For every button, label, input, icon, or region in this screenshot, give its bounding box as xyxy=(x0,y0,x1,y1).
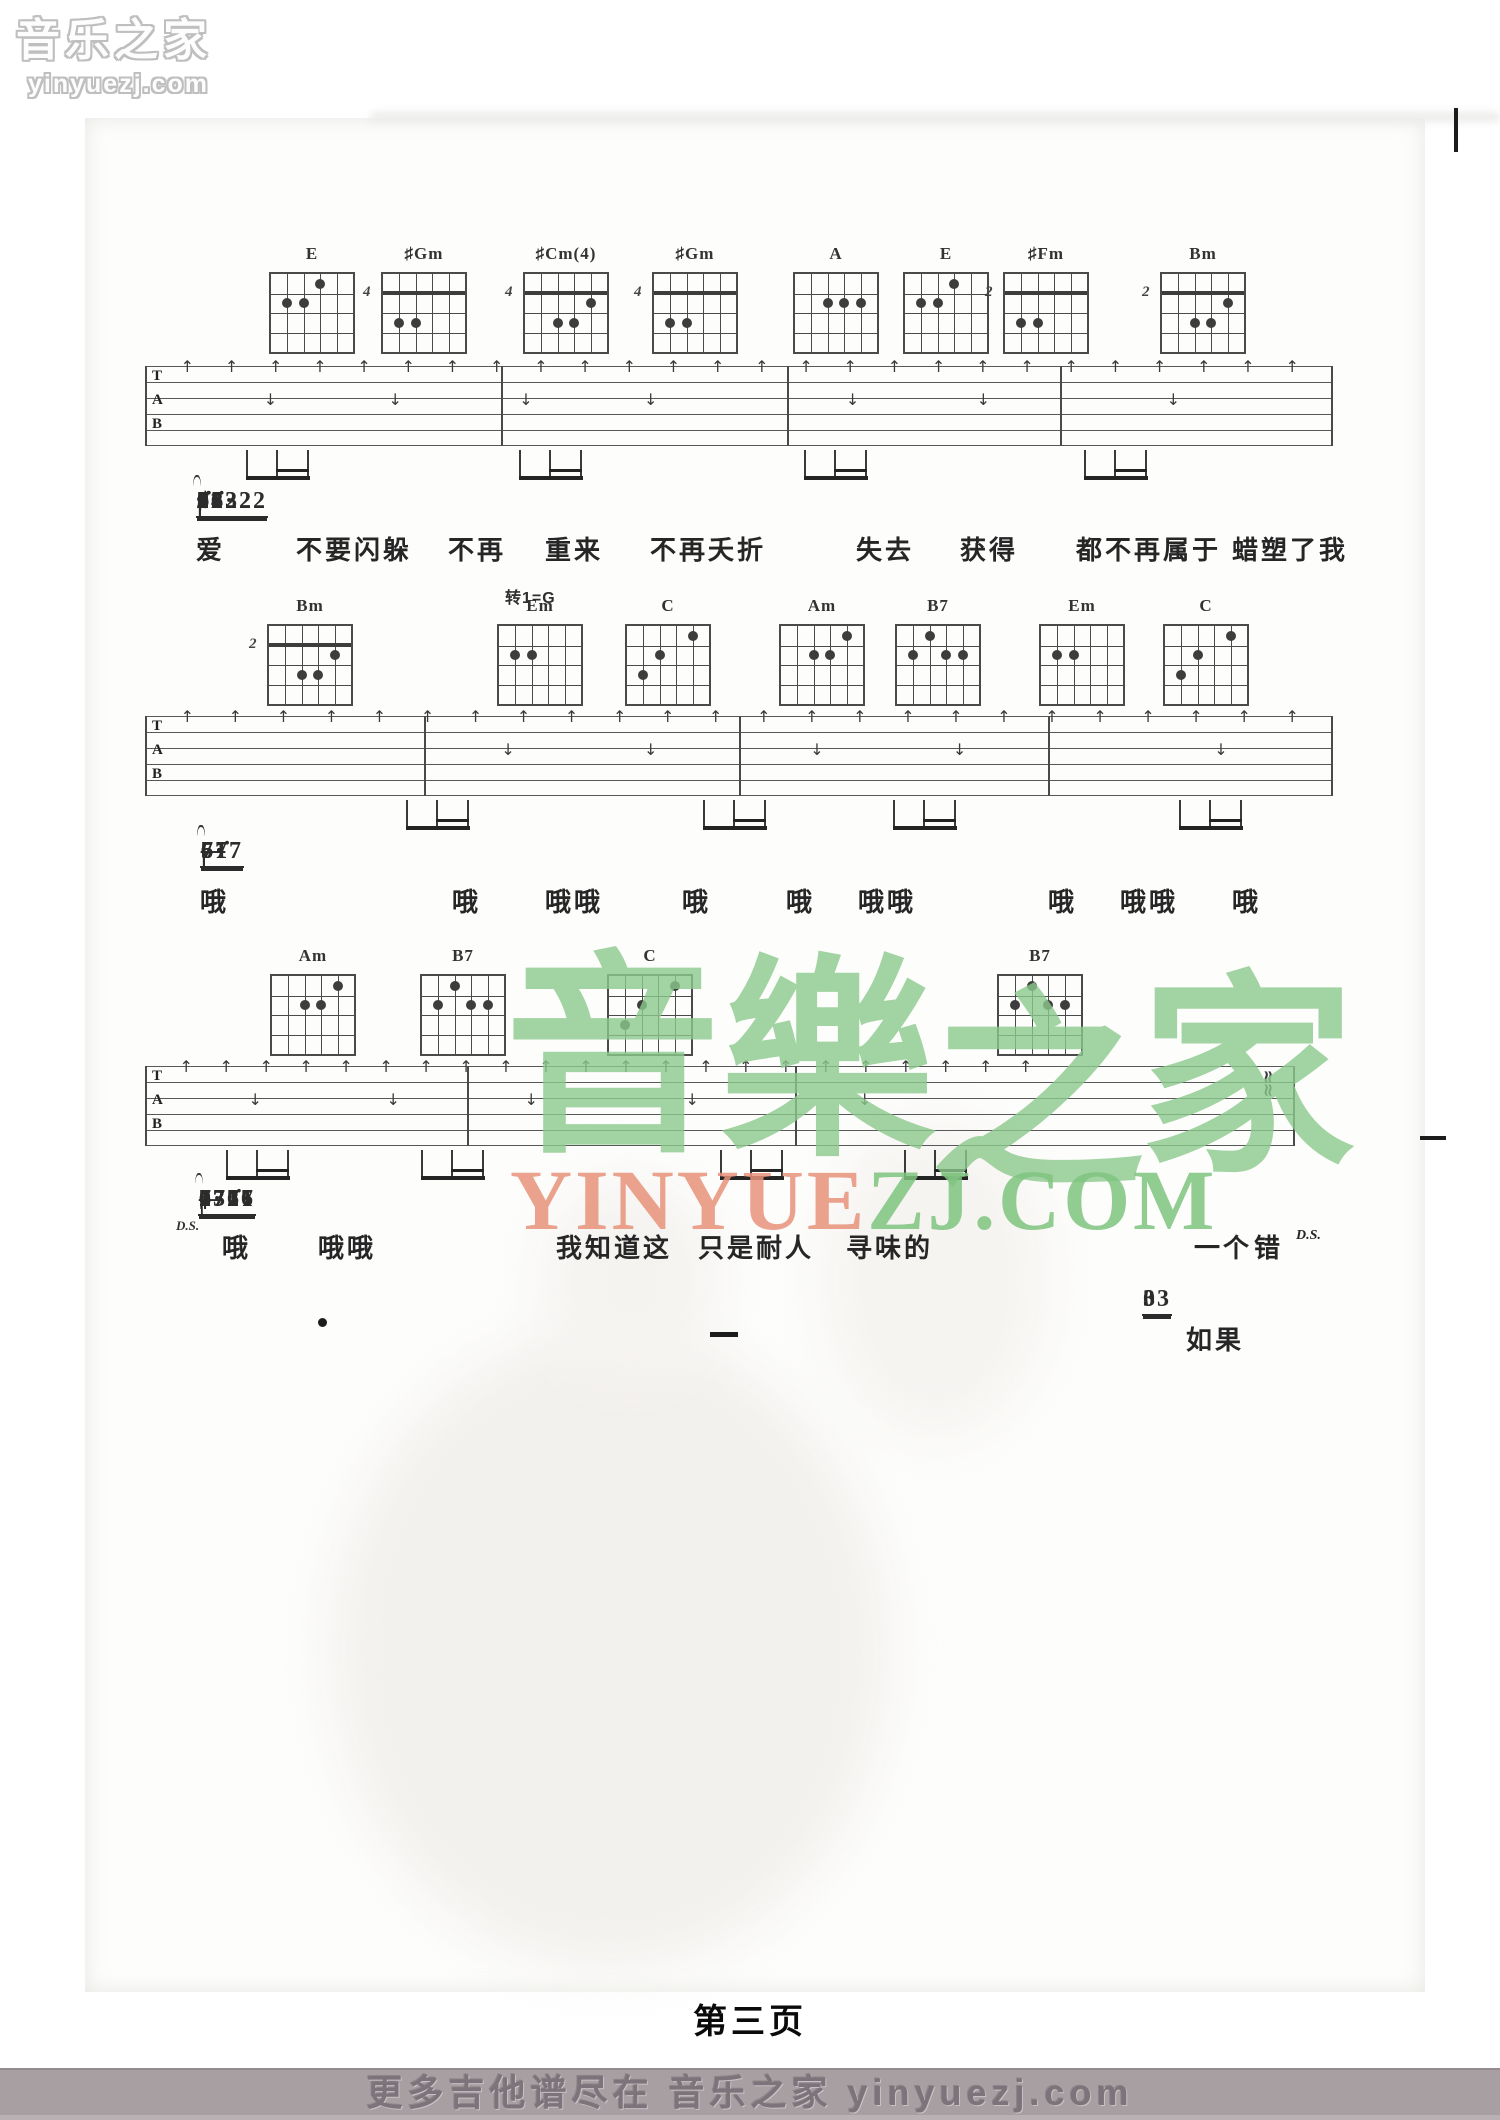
barre-fret-number: 2 xyxy=(249,636,257,653)
finger-dot xyxy=(527,650,537,660)
finger-dot xyxy=(433,1000,443,1010)
staff-barline xyxy=(1331,366,1333,446)
chord-name-label: C xyxy=(598,596,738,616)
note-stem xyxy=(804,450,806,478)
finger-dot xyxy=(839,298,849,308)
strum-up-arrow: ↑ xyxy=(1285,357,1298,376)
finger-dot xyxy=(842,631,852,641)
arpeggio-squiggle: ≈≈ xyxy=(1257,1069,1278,1095)
strum-up-arrow: ↑ xyxy=(1285,707,1298,726)
chord-name-label: ♯Gm xyxy=(354,244,494,264)
strum-up-arrow: ↑ xyxy=(899,1057,912,1076)
chord-grid-fret-line xyxy=(1041,665,1123,666)
lyric-syllable: 哦 xyxy=(200,882,229,919)
chord-diagram xyxy=(779,624,865,706)
lyric-syllable: 如果 xyxy=(1186,1320,1244,1357)
tie-arc xyxy=(195,1173,203,1184)
chord-diagram xyxy=(269,272,355,354)
chord-diagram xyxy=(523,272,609,354)
notation-text: 33 xyxy=(1142,1286,1172,1316)
finger-dot xyxy=(313,670,323,680)
finger-dot xyxy=(300,1000,310,1010)
note-stem xyxy=(934,1150,936,1178)
chord-grid-fret-line xyxy=(999,1035,1081,1036)
staff-barline xyxy=(787,366,789,446)
note-stem xyxy=(781,1150,783,1178)
chord-name-label: B7 xyxy=(970,946,1110,966)
strum-down-arrow: ↓ xyxy=(858,1090,871,1109)
chord-grid-fret-line xyxy=(1165,646,1247,647)
tie-arc xyxy=(193,475,201,486)
note-stem xyxy=(406,800,408,828)
finger-dot xyxy=(1226,631,1236,641)
strum-up-arrow: ↑ xyxy=(219,1057,232,1076)
lyric-syllable: 哦 xyxy=(786,882,815,919)
lyric-syllable: 蜡塑了我 xyxy=(1232,530,1348,567)
note-stem xyxy=(256,1150,258,1178)
strum-up-arrow: ↑ xyxy=(805,707,818,726)
strum-up-arrow: ↑ xyxy=(259,1057,272,1076)
note-stem xyxy=(893,800,895,828)
strum-up-arrow: ↑ xyxy=(1093,707,1106,726)
note-stem xyxy=(549,450,551,478)
chord-diagram xyxy=(1003,272,1089,354)
strum-down-arrow: ↓ xyxy=(389,390,402,409)
strum-up-arrow: ↑ xyxy=(578,357,591,376)
barre-line xyxy=(383,291,465,295)
strum-up-arrow: ↑ xyxy=(939,1057,952,1076)
beam-bar xyxy=(246,476,310,480)
strum-up-arrow: ↑ xyxy=(739,1057,752,1076)
chord-grid-fret-line xyxy=(271,333,353,334)
chord-grid-fret-line xyxy=(1162,313,1244,314)
chord-grid-fret-line xyxy=(897,665,979,666)
finger-dot xyxy=(299,298,309,308)
chord-name-label: B7 xyxy=(393,946,533,966)
staff-line xyxy=(145,1066,1295,1067)
finger-dot xyxy=(1176,670,1186,680)
finger-dot xyxy=(1052,650,1062,660)
barre-fret-number: 4 xyxy=(363,284,371,301)
note-stem xyxy=(720,1150,722,1178)
staff-barline xyxy=(145,716,147,796)
chord-grid-fret-line xyxy=(999,996,1081,997)
chord-grid-fret-line xyxy=(383,333,465,334)
strum-up-arrow: ↑ xyxy=(901,707,914,726)
strum-up-arrow: ↑ xyxy=(181,707,194,726)
staff-line xyxy=(145,445,1333,446)
scan-artifact-mark xyxy=(1454,108,1458,152)
notation-text: ‖ xyxy=(198,1186,208,1216)
strum-up-arrow: ↑ xyxy=(277,707,290,726)
staff-barline xyxy=(739,716,741,796)
beam-group xyxy=(703,800,769,832)
note-stem xyxy=(482,1150,484,1178)
beam-bar xyxy=(703,826,767,830)
chord-grid-fret-line xyxy=(627,646,709,647)
lyric-syllable: 错 xyxy=(1254,1228,1283,1265)
note-stem xyxy=(904,1150,906,1178)
chord-grid-fret-line xyxy=(422,1015,504,1016)
tab-staff: TAB↑↑↑↑↑↑↑↑↑↑↑↑↑↑↑↑↑↑↑↑↑↑↑↑↓↓↓↓↓ xyxy=(145,716,1333,796)
chord-name-label: C xyxy=(580,946,720,966)
strum-down-arrow: ↓ xyxy=(525,1090,538,1109)
note-stem xyxy=(436,800,438,828)
chord-diagram xyxy=(381,272,467,354)
chord-diagram xyxy=(607,974,693,1056)
note-stem xyxy=(750,1150,752,1178)
finger-dot xyxy=(1069,650,1079,660)
chord-grid-fret-line xyxy=(1005,313,1087,314)
site-logo: 音乐之家 yinyuezj.com xyxy=(16,4,212,99)
strum-down-arrow: ↓ xyxy=(644,390,657,409)
finger-dot xyxy=(282,298,292,308)
tab-letter: T xyxy=(152,1068,162,1085)
chord-grid-fret-line xyxy=(609,1035,691,1036)
beam-bar xyxy=(834,469,867,472)
chord-grid-fret-line xyxy=(897,646,979,647)
strum-up-arrow: ↑ xyxy=(711,357,724,376)
finger-dot xyxy=(665,318,675,328)
strum-up-arrow: ↑ xyxy=(1141,707,1154,726)
beam-group xyxy=(904,1150,970,1182)
barre-fret-number: 2 xyxy=(985,284,993,301)
chord-name-label: Bm xyxy=(1133,244,1273,264)
staff-line xyxy=(145,414,1333,415)
staff-barline xyxy=(1331,716,1333,796)
strum-up-arrow: ↑ xyxy=(757,707,770,726)
strum-down-arrow: ↓ xyxy=(387,1090,400,1109)
strum-up-arrow: ↑ xyxy=(659,1057,672,1076)
chord-grid-fret-line xyxy=(905,313,987,314)
barre-fret-number: 4 xyxy=(634,284,642,301)
beam-group xyxy=(226,1150,292,1182)
barre-line xyxy=(1005,291,1087,295)
chord-name-label: ♯Gm xyxy=(625,244,765,264)
strum-up-arrow: ↑ xyxy=(859,1057,872,1076)
lyric-syllable: 哦 xyxy=(1232,882,1261,919)
finger-dot xyxy=(1016,318,1026,328)
beam-bar xyxy=(750,1169,783,1172)
strum-up-arrow: ↑ xyxy=(997,707,1010,726)
chord-diagram xyxy=(1160,272,1246,354)
lyric-syllable: 哦 xyxy=(222,1228,251,1265)
finger-dot xyxy=(394,318,404,328)
lyric-syllable: 哦 xyxy=(1048,882,1077,919)
note-stem xyxy=(467,800,469,828)
finger-dot xyxy=(333,981,343,991)
strum-up-arrow: ↑ xyxy=(949,707,962,726)
finger-dot xyxy=(510,650,520,660)
strum-down-arrow: ↓ xyxy=(686,1090,699,1109)
chord-grid-fret-line xyxy=(654,313,736,314)
lyric-syllable: 不要闪躲 xyxy=(296,530,412,567)
strum-up-arrow: ↑ xyxy=(844,357,857,376)
beam-bar xyxy=(276,469,309,472)
beam-group xyxy=(720,1150,786,1182)
strum-up-arrow: ↑ xyxy=(819,1057,832,1076)
strum-up-arrow: ↑ xyxy=(579,1057,592,1076)
finger-dot xyxy=(688,631,698,641)
beam-bar xyxy=(256,1169,289,1172)
strum-up-arrow: ↑ xyxy=(1065,357,1078,376)
strum-up-arrow: ↑ xyxy=(699,1057,712,1076)
note-stem xyxy=(307,450,309,478)
sheet-music-score: E♯Gm4♯Cm(4)4♯Gm4AE♯Fm2Bm2TAB↑↑↑↑↑↑↑↑↑↑↑↑… xyxy=(0,0,1500,2120)
chord-grid-fret-line xyxy=(499,685,581,686)
finger-dot xyxy=(553,318,563,328)
note-stem xyxy=(703,800,705,828)
finger-dot xyxy=(856,298,866,308)
chord-grid-fret-line xyxy=(1162,333,1244,334)
staff-line xyxy=(145,1082,1295,1083)
finger-dot xyxy=(1193,650,1203,660)
staff-line xyxy=(145,382,1333,383)
tab-letter: T xyxy=(152,368,162,385)
strum-up-arrow: ↑ xyxy=(499,1057,512,1076)
finger-dot xyxy=(1206,318,1216,328)
strum-up-arrow: ↑ xyxy=(419,1057,432,1076)
beam-bar xyxy=(733,819,766,822)
beam-bar xyxy=(1179,826,1243,830)
scan-artifact-mark xyxy=(710,1332,738,1337)
chord-diagram xyxy=(625,624,711,706)
chord-name-label: Bm xyxy=(240,596,380,616)
beam-group xyxy=(1179,800,1245,832)
chord-grid-fret-line xyxy=(795,333,877,334)
finger-dot xyxy=(941,650,951,660)
lyric-syllable: 只是耐人 xyxy=(698,1228,814,1265)
finger-dot xyxy=(949,279,959,289)
strum-up-arrow: ↑ xyxy=(402,357,415,376)
lyric-syllable: 不再夭折 xyxy=(650,530,766,567)
notation-text: | xyxy=(196,488,204,518)
chord-grid-fret-line xyxy=(499,646,581,647)
strum-down-arrow: ↓ xyxy=(977,390,990,409)
finger-dot xyxy=(483,1000,493,1010)
note-stem xyxy=(965,1150,967,1178)
beam-bar xyxy=(904,1176,968,1180)
strum-up-arrow: ↑ xyxy=(1109,357,1122,376)
lyric-syllable: 我知道这 xyxy=(556,1228,672,1265)
staff-line xyxy=(145,1130,1295,1131)
chord-grid-fret-line xyxy=(627,685,709,686)
strum-down-arrow: ↓ xyxy=(644,740,657,759)
chord-grid-fret-line xyxy=(781,685,863,686)
beam-bar xyxy=(1209,819,1242,822)
finger-dot xyxy=(638,670,648,680)
staff-barline xyxy=(145,366,147,446)
chord-grid-fret-line xyxy=(897,685,979,686)
ds-marking: D.S. xyxy=(176,1218,199,1234)
note-stem xyxy=(1114,450,1116,478)
strum-up-arrow: ↑ xyxy=(979,1057,992,1076)
barre-line xyxy=(269,643,351,647)
chord-grid-fret-line xyxy=(781,665,863,666)
strum-down-arrow: ↓ xyxy=(846,390,859,409)
staff-line xyxy=(145,1114,1295,1115)
strum-up-arrow: ↑ xyxy=(421,707,434,726)
note-stem xyxy=(834,450,836,478)
note-stem xyxy=(1209,800,1211,828)
page-number: 第三页 xyxy=(0,1994,1500,2043)
tab-letter: A xyxy=(152,1092,163,1109)
chord-grid-fret-line xyxy=(609,996,691,997)
barre-line xyxy=(525,291,607,295)
strum-down-arrow: ↓ xyxy=(264,390,277,409)
strum-up-arrow: ↑ xyxy=(853,707,866,726)
strum-down-arrow: ↓ xyxy=(953,740,966,759)
beam-group xyxy=(1084,450,1150,482)
beam-group xyxy=(893,800,959,832)
chord-name-label: Am xyxy=(243,946,383,966)
strum-up-arrow: ↑ xyxy=(469,707,482,726)
lyric-syllable: 哦哦 xyxy=(545,882,603,919)
note-stem xyxy=(1179,800,1181,828)
finger-dot xyxy=(825,650,835,660)
finger-dot xyxy=(1010,1000,1020,1010)
chord-grid-fret-line xyxy=(272,996,354,997)
chord-diagram xyxy=(497,624,583,706)
chord-grid-fret-line xyxy=(1041,685,1123,686)
scan-artifact-mark xyxy=(1420,1136,1446,1140)
strum-up-arrow: ↑ xyxy=(1189,707,1202,726)
note-stem xyxy=(865,450,867,478)
note-stem xyxy=(451,1150,453,1178)
strum-up-arrow: ↑ xyxy=(299,1057,312,1076)
strum-up-arrow: ↑ xyxy=(619,1057,632,1076)
strum-up-arrow: ↑ xyxy=(1237,707,1250,726)
staff-line xyxy=(145,1098,1295,1099)
beam-bar xyxy=(406,826,470,830)
tab-staff: TAB↑↑↑↑↑↑↑↑↑↑↑↑↑↑↑↑↑↑↑↑↑↑↓↓↓↓↓≈≈ xyxy=(145,1066,1295,1146)
lyric-syllable: 都不再属于 xyxy=(1076,530,1221,567)
barre-fret-number: 4 xyxy=(505,284,513,301)
strum-up-arrow: ↑ xyxy=(1045,707,1058,726)
note-stem xyxy=(1145,450,1147,478)
strum-up-arrow: ↑ xyxy=(799,357,812,376)
tab-staff: TAB↑↑↑↑↑↑↑↑↑↑↑↑↑↑↑↑↑↑↑↑↑↑↑↑↑↑↓↓↓↓↓↓↓ xyxy=(145,366,1333,446)
strum-up-arrow: ↑ xyxy=(379,1057,392,1076)
staff-barline xyxy=(501,366,503,446)
staff-barline xyxy=(467,1066,469,1146)
notation-text: | xyxy=(200,838,208,868)
chord-grid-fret-line xyxy=(781,646,863,647)
lyric-syllable: 重来 xyxy=(545,530,603,567)
strum-up-arrow: ↑ xyxy=(339,1057,352,1076)
chord-grid-fret-line xyxy=(525,313,607,314)
note-stem xyxy=(580,450,582,478)
note-stem xyxy=(226,1150,228,1178)
strum-up-arrow: ↑ xyxy=(1019,1057,1032,1076)
chord-diagram xyxy=(1039,624,1125,706)
finger-dot xyxy=(316,1000,326,1010)
chord-grid-fret-line xyxy=(271,313,353,314)
note-stem xyxy=(421,1150,423,1178)
chord-grid-fret-line xyxy=(525,333,607,334)
scan-artifact-mark xyxy=(318,1318,327,1327)
finger-dot xyxy=(315,279,325,289)
tab-letter: B xyxy=(152,1116,162,1133)
strum-down-arrow: ↓ xyxy=(249,1090,262,1109)
tab-letter: B xyxy=(152,766,162,783)
chord-diagram xyxy=(267,624,353,706)
chord-grid-fret-line xyxy=(422,1035,504,1036)
chord-diagram xyxy=(420,974,506,1056)
strum-up-arrow: ↑ xyxy=(357,357,370,376)
finger-dot xyxy=(1043,1000,1053,1010)
staff-line xyxy=(145,430,1333,431)
strum-up-arrow: ↑ xyxy=(490,357,503,376)
notation-text: 34322 xyxy=(196,488,268,518)
chord-name-label: Em xyxy=(1012,596,1152,616)
strum-up-arrow: ↑ xyxy=(225,357,238,376)
note-stem xyxy=(764,800,766,828)
finger-dot xyxy=(682,318,692,328)
barre-line xyxy=(654,291,736,295)
chord-grid-fret-line xyxy=(1005,333,1087,334)
barre-fret-number: 2 xyxy=(1142,284,1150,301)
lyric-syllable: 哦哦 xyxy=(318,1228,376,1265)
strum-down-arrow: ↓ xyxy=(1214,740,1227,759)
strum-up-arrow: ↑ xyxy=(1153,357,1166,376)
finger-dot xyxy=(586,298,596,308)
strum-up-arrow: ↑ xyxy=(181,357,194,376)
strum-up-arrow: ↑ xyxy=(755,357,768,376)
strum-down-arrow: ↓ xyxy=(501,740,514,759)
beam-bar xyxy=(1084,476,1148,480)
chord-grid-fret-line xyxy=(627,665,709,666)
finger-dot xyxy=(620,1020,630,1030)
strum-up-arrow: ↑ xyxy=(1241,357,1254,376)
chord-grid-fret-line xyxy=(383,313,465,314)
strum-up-arrow: ↑ xyxy=(779,1057,792,1076)
strum-up-arrow: ↑ xyxy=(1020,357,1033,376)
tab-letter: B xyxy=(152,416,162,433)
finger-dot xyxy=(823,298,833,308)
note-stem xyxy=(923,800,925,828)
lyric-syllable: D.S. xyxy=(1296,1228,1321,1244)
finger-dot xyxy=(411,318,421,328)
chord-grid-fret-line xyxy=(795,313,877,314)
strum-up-arrow: ↑ xyxy=(534,357,547,376)
finger-dot xyxy=(809,650,819,660)
chord-name-label: ♯Cm(4) xyxy=(496,244,636,264)
lyric-syllable: 哦哦 xyxy=(1120,882,1178,919)
note-stem xyxy=(287,1150,289,1178)
beam-group xyxy=(804,450,870,482)
chord-grid-fret-line xyxy=(999,1015,1081,1016)
chord-grid-fret-line xyxy=(422,996,504,997)
beam-bar xyxy=(451,1169,484,1172)
beam-bar xyxy=(436,819,469,822)
chord-grid-fret-line xyxy=(1165,665,1247,666)
beam-bar xyxy=(519,476,583,480)
chord-grid-fret-line xyxy=(905,294,987,295)
lyric-syllable: 哦哦 xyxy=(858,882,916,919)
chord-diagram xyxy=(895,624,981,706)
staff-line xyxy=(145,1145,1295,1146)
strum-up-arrow: ↑ xyxy=(446,357,459,376)
lyric-syllable: 获得 xyxy=(960,530,1018,567)
lyric-syllable: 一个 xyxy=(1194,1228,1252,1265)
strum-up-arrow: ↑ xyxy=(623,357,636,376)
beam-bar xyxy=(720,1176,784,1180)
beam-bar xyxy=(923,819,956,822)
beam-bar xyxy=(1114,469,1147,472)
staff-line xyxy=(145,398,1333,399)
scanned-guitar-tab-page: { "page": {"number_label": "第三页"}, "logo… xyxy=(0,0,1500,2120)
